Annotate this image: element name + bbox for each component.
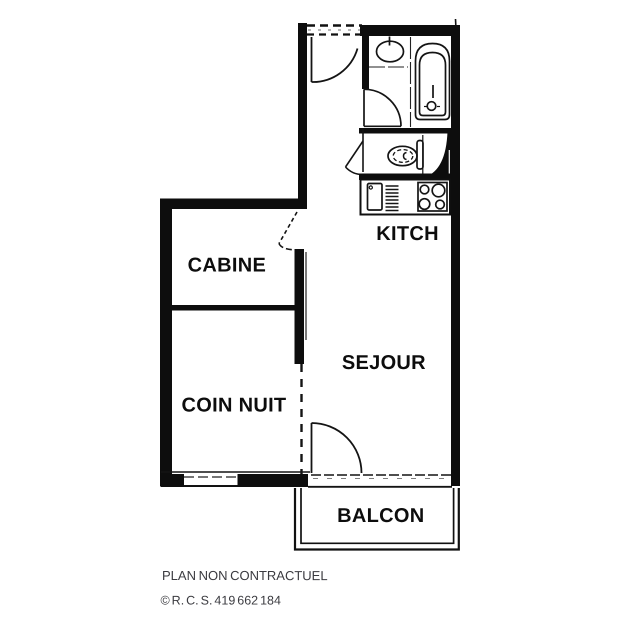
svg-text:PLAN NON CONTRACTUEL: PLAN NON CONTRACTUEL xyxy=(162,568,328,583)
svg-text:© R. C. S. 419 662 184: © R. C. S. 419 662 184 xyxy=(160,594,280,608)
svg-text:KITCH: KITCH xyxy=(376,223,439,245)
svg-text:CABINE: CABINE xyxy=(188,254,266,276)
svg-text:COIN NUIT: COIN NUIT xyxy=(182,394,287,416)
svg-text:SEJOUR: SEJOUR xyxy=(342,352,426,374)
svg-text:BALCON: BALCON xyxy=(337,505,424,527)
